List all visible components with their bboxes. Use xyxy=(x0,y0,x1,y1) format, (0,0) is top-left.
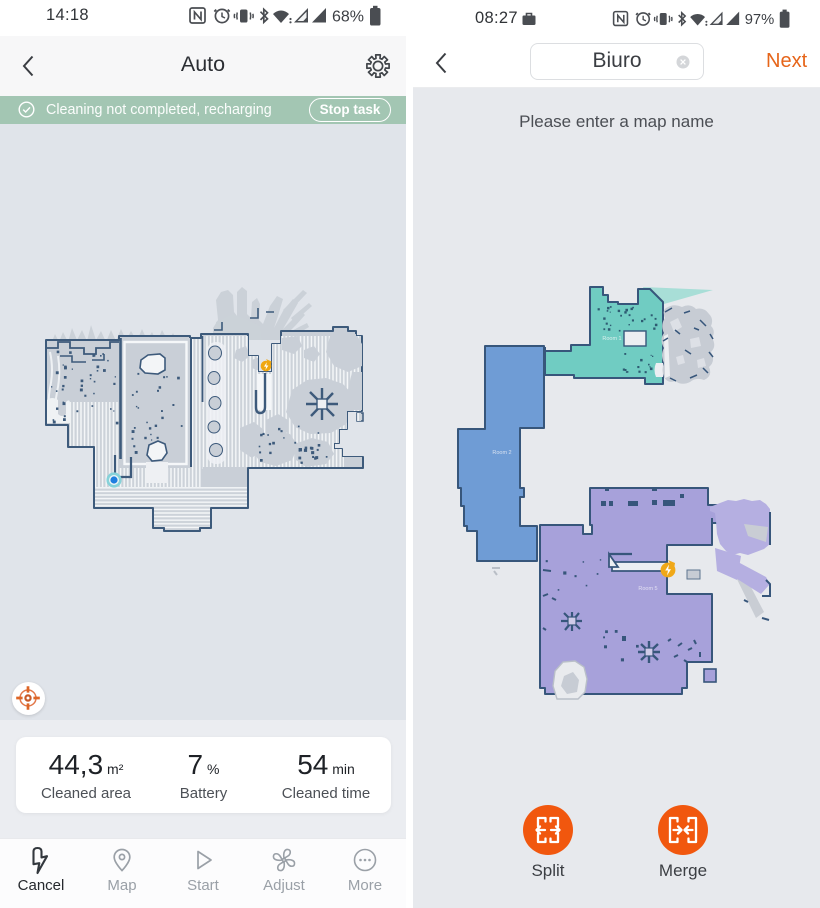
svg-text:68%: 68% xyxy=(332,9,364,26)
svg-text:97%: 97% xyxy=(745,12,775,28)
svg-text:Room 2: Room 2 xyxy=(492,450,511,456)
svg-text:Room 5: Room 5 xyxy=(638,586,657,592)
svg-text:Room 1: Room 1 xyxy=(602,336,621,342)
